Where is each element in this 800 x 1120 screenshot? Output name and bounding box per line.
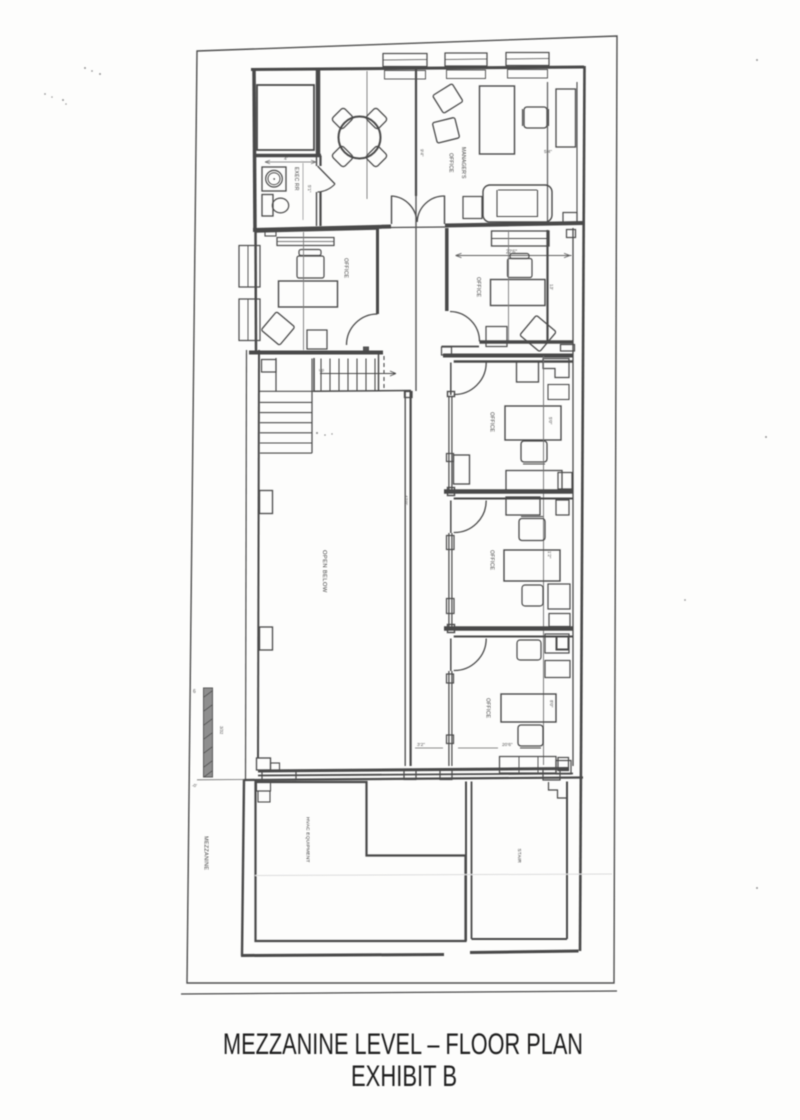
svg-text:5'4": 5'4" [544, 149, 552, 155]
svg-text:MEZZANINE: MEZZANINE [203, 836, 209, 870]
svg-text:9'4": 9'4" [420, 149, 425, 157]
svg-text:47'0": 47'0" [404, 495, 409, 505]
svg-text:1'2": 1'2" [547, 551, 552, 559]
svg-text:OFFICE: OFFICE [489, 550, 495, 571]
svg-text:22'6": 22'6" [506, 250, 517, 256]
svg-text:3/32: 3/32 [219, 726, 224, 735]
svg-text:MEZZANINE LEVEL – FLOOR PLAN: MEZZANINE LEVEL – FLOOR PLAN [223, 1028, 583, 1061]
svg-text:20'6": 20'6" [502, 742, 513, 748]
svg-text:OFFICE: OFFICE [475, 277, 481, 298]
svg-text:5'0": 5'0" [548, 417, 553, 425]
svg-text:OPEN BELOW: OPEN BELOW [321, 550, 327, 593]
svg-text:STAIR: STAIR [517, 849, 522, 864]
svg-text:MANAGER'S: MANAGER'S [460, 147, 466, 179]
svg-text:5'1": 5'1" [307, 185, 312, 193]
svg-text:13': 13' [549, 284, 554, 290]
svg-text:4': 4' [284, 156, 288, 162]
svg-text:-0': -0' [192, 783, 197, 788]
svg-text:8'0": 8'0" [549, 700, 554, 708]
svg-text:3'2": 3'2" [417, 742, 425, 748]
svg-text:OFFICE: OFFICE [343, 258, 349, 279]
svg-text:EXEC RR: EXEC RR [293, 167, 299, 191]
svg-text:up: up [319, 368, 325, 373]
svg-text:6: 6 [193, 689, 196, 695]
svg-text:OFFICE: OFFICE [489, 412, 495, 433]
svg-text:OFFICE: OFFICE [485, 698, 491, 719]
svg-text:HVAC EQUIPMENT: HVAC EQUIPMENT [305, 817, 311, 863]
svg-text:EXHIBIT B: EXHIBIT B [351, 1060, 457, 1093]
svg-text:OFFICE: OFFICE [448, 153, 454, 173]
